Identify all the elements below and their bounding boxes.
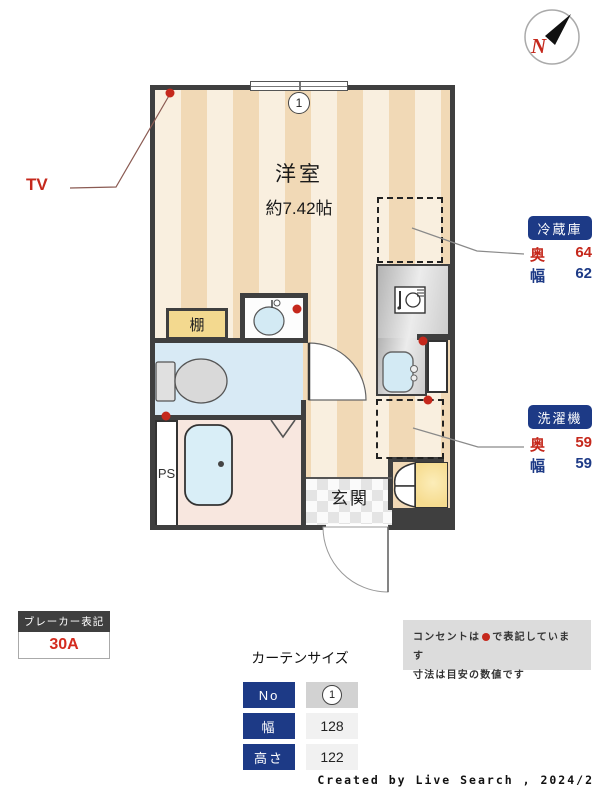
credit-text: Created by Live Search , 2024/2 [317,773,594,787]
window-center-tick [299,82,301,90]
tv-label: TV [26,175,48,195]
entrance-threshold-line [306,477,392,479]
curtain-row-no-value: 1 [306,682,358,708]
wall-under-shelf [150,338,308,343]
breaker-title: ブレーカー表記 [18,611,110,632]
curtain-row-width-value: 128 [306,713,358,739]
window-number-badge: 1 [288,92,310,114]
window-number: 1 [296,96,303,110]
compass-north-label: N [530,34,547,58]
wall-toilet-bath [150,415,306,420]
curtain-size-title: カーテンサイズ [245,648,355,668]
washer-space-outline [376,399,444,459]
washer-depth-label: 奥 [530,434,545,455]
wall-vanity-left [240,293,245,338]
entrance-door-opening [326,524,388,532]
note-line1-pre: コンセントは [413,632,480,643]
entrance-door-swing [323,527,388,592]
washer-width-label: 幅 [530,455,545,476]
breaker-value: 30A [18,632,110,659]
wall-bottom-right-block [392,508,450,528]
curtain-no-circle: 1 [322,685,342,705]
outlet-note-box: コンセントはで表記しています 寸法は目安の数値です [403,620,591,670]
entrance-label: 玄関 [318,484,382,509]
room-name-label: 洋室 [249,158,349,188]
wall-closet-left [388,457,393,510]
fridge-space-outline [377,197,443,263]
curtain-row-height-value: 122 [306,744,358,770]
washer-badge: 洗濯機 [528,405,592,429]
fridge-depth-value: 64 [575,244,592,265]
window-1 [250,81,348,91]
fridge-depth-row: 奥 64 [530,244,592,265]
curtain-row-height-label: 高さ [243,744,295,770]
outlet-dot-icon [482,633,490,641]
washer-width-row: 幅 59 [530,455,592,476]
room-size-label: 約7.42帖 [239,194,359,219]
washer-width-value: 59 [575,455,592,476]
wall-hall-upper [303,293,308,343]
washer-depth-row: 奥 59 [530,434,592,455]
curtain-row-width-label: 幅 [243,713,295,739]
fridge-width-label: 幅 [530,265,545,286]
wall-cabinet-top [417,334,450,340]
breaker-box: ブレーカー表記 30A [18,611,110,659]
fridge-width-value: 62 [575,265,592,286]
floorplan-page: PS 棚 1 [0,0,600,800]
washer-depth-value: 59 [575,434,592,455]
curtain-row-no-label: No [243,682,295,708]
compass-icon: N [520,5,584,69]
note-line2: 寸法は目安の数値です [413,670,525,681]
fridge-width-row: 幅 62 [530,265,592,286]
fridge-badge: 冷蔵庫 [528,216,592,240]
fridge-depth-label: 奥 [530,244,545,265]
wall-vanity-top [240,293,308,298]
